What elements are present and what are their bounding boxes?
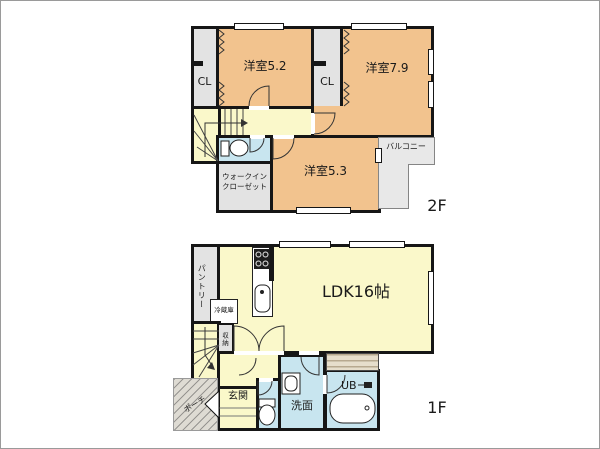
door-opening bbox=[249, 106, 269, 110]
window bbox=[349, 241, 405, 248]
bedroom-7-9-lower bbox=[311, 106, 343, 138]
stove bbox=[254, 249, 270, 269]
deck-step bbox=[326, 353, 379, 371]
ldk-label: LDK16帖 bbox=[296, 283, 416, 301]
storage-label: 収納 bbox=[220, 328, 227, 350]
door-opening bbox=[299, 351, 319, 355]
bedroom-5-2-label: 洋室5.2 bbox=[216, 60, 314, 74]
entrance-label: 玄関 bbox=[217, 391, 259, 403]
floor2-label: 2F bbox=[419, 197, 455, 215]
wic-label-line1: ウォークイン bbox=[215, 173, 274, 182]
door-opening bbox=[259, 378, 273, 382]
door-opening bbox=[250, 135, 265, 139]
unit-bath-label: UB bbox=[341, 380, 365, 393]
window bbox=[351, 23, 407, 30]
closet-right-label: CL bbox=[311, 76, 343, 89]
bedroom-7-9 bbox=[340, 26, 434, 138]
toilet-2f bbox=[216, 135, 273, 164]
floor-plan: 洋室5.2 洋室7.9 洋室5.3 CL CL ウォークイン クローゼット バル… bbox=[0, 0, 600, 449]
bedroom-7-9-label: 洋室7.9 bbox=[340, 62, 434, 76]
door-opening bbox=[311, 113, 315, 134]
window bbox=[428, 81, 434, 108]
closet-right bbox=[311, 26, 343, 109]
washroom-label: 洗面 bbox=[278, 400, 326, 413]
balcony-edge bbox=[408, 164, 435, 165]
hall-1f bbox=[217, 351, 259, 389]
door-opening bbox=[273, 135, 294, 139]
door-opening bbox=[323, 375, 327, 394]
washroom bbox=[278, 354, 326, 431]
closet-left-label: CL bbox=[190, 76, 219, 89]
bedroom-5-3-label: 洋室5.3 bbox=[270, 165, 381, 179]
balcony-lower bbox=[378, 164, 409, 209]
door-opening bbox=[234, 351, 284, 355]
refrigerator-label: 冷蔵庫 bbox=[210, 307, 238, 314]
window bbox=[296, 207, 351, 214]
closet-left bbox=[191, 26, 219, 109]
window bbox=[234, 23, 284, 30]
wic-label-line2: クローゼット bbox=[215, 183, 274, 192]
balcony-label: バルコニー bbox=[379, 142, 433, 151]
window bbox=[279, 241, 331, 248]
window bbox=[428, 271, 434, 325]
pantry-label: パントリー bbox=[197, 249, 206, 323]
floor1-label: 1F bbox=[419, 399, 455, 417]
